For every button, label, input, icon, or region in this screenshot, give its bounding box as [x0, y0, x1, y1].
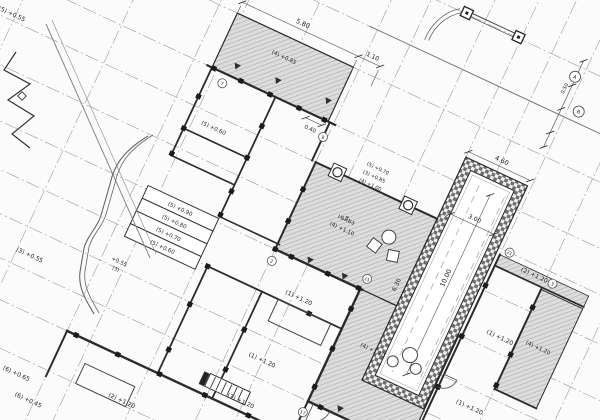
garden-steps: (5) +0.90 (5) +0.80 (5) +0.70 (5) +0.60 — [124, 186, 218, 270]
level-corner-2: (6) +0.45 — [14, 391, 43, 410]
break-line — [4, 52, 34, 148]
upper-terrace-strip — [212, 13, 353, 121]
level-path-ref: (3) — [111, 265, 120, 273]
level-garden: (3) +0.55 — [15, 246, 44, 265]
room-label: (1) +1.20 — [455, 398, 484, 417]
dim-edge-offset: 0.40 — [303, 124, 317, 135]
room-label: (1) +1.20 — [247, 351, 276, 370]
level-corner-1: (6) +0.65 — [2, 365, 31, 384]
dim-pool-outer-width: 4.60 — [494, 154, 511, 167]
planter-rect — [268, 299, 331, 345]
level-left-room: (5) +0.60 — [200, 120, 227, 137]
room-label: (1) +1.20 — [485, 329, 514, 348]
floor-plan-svg: (5) +0.90 (5) +0.80 (5) +0.70 (5) +0.60 … — [0, 0, 600, 420]
dim-strip-length: 5.80 — [295, 17, 312, 30]
door-arc — [438, 374, 457, 393]
dim-strip-extension: 1.10 — [365, 51, 380, 63]
room-label: (2) +1.20 — [107, 392, 136, 411]
pergola — [403, 0, 587, 151]
floor-plan-page: (5) +0.90 (5) +0.80 (5) +0.70 (5) +0.60 … — [0, 0, 600, 420]
